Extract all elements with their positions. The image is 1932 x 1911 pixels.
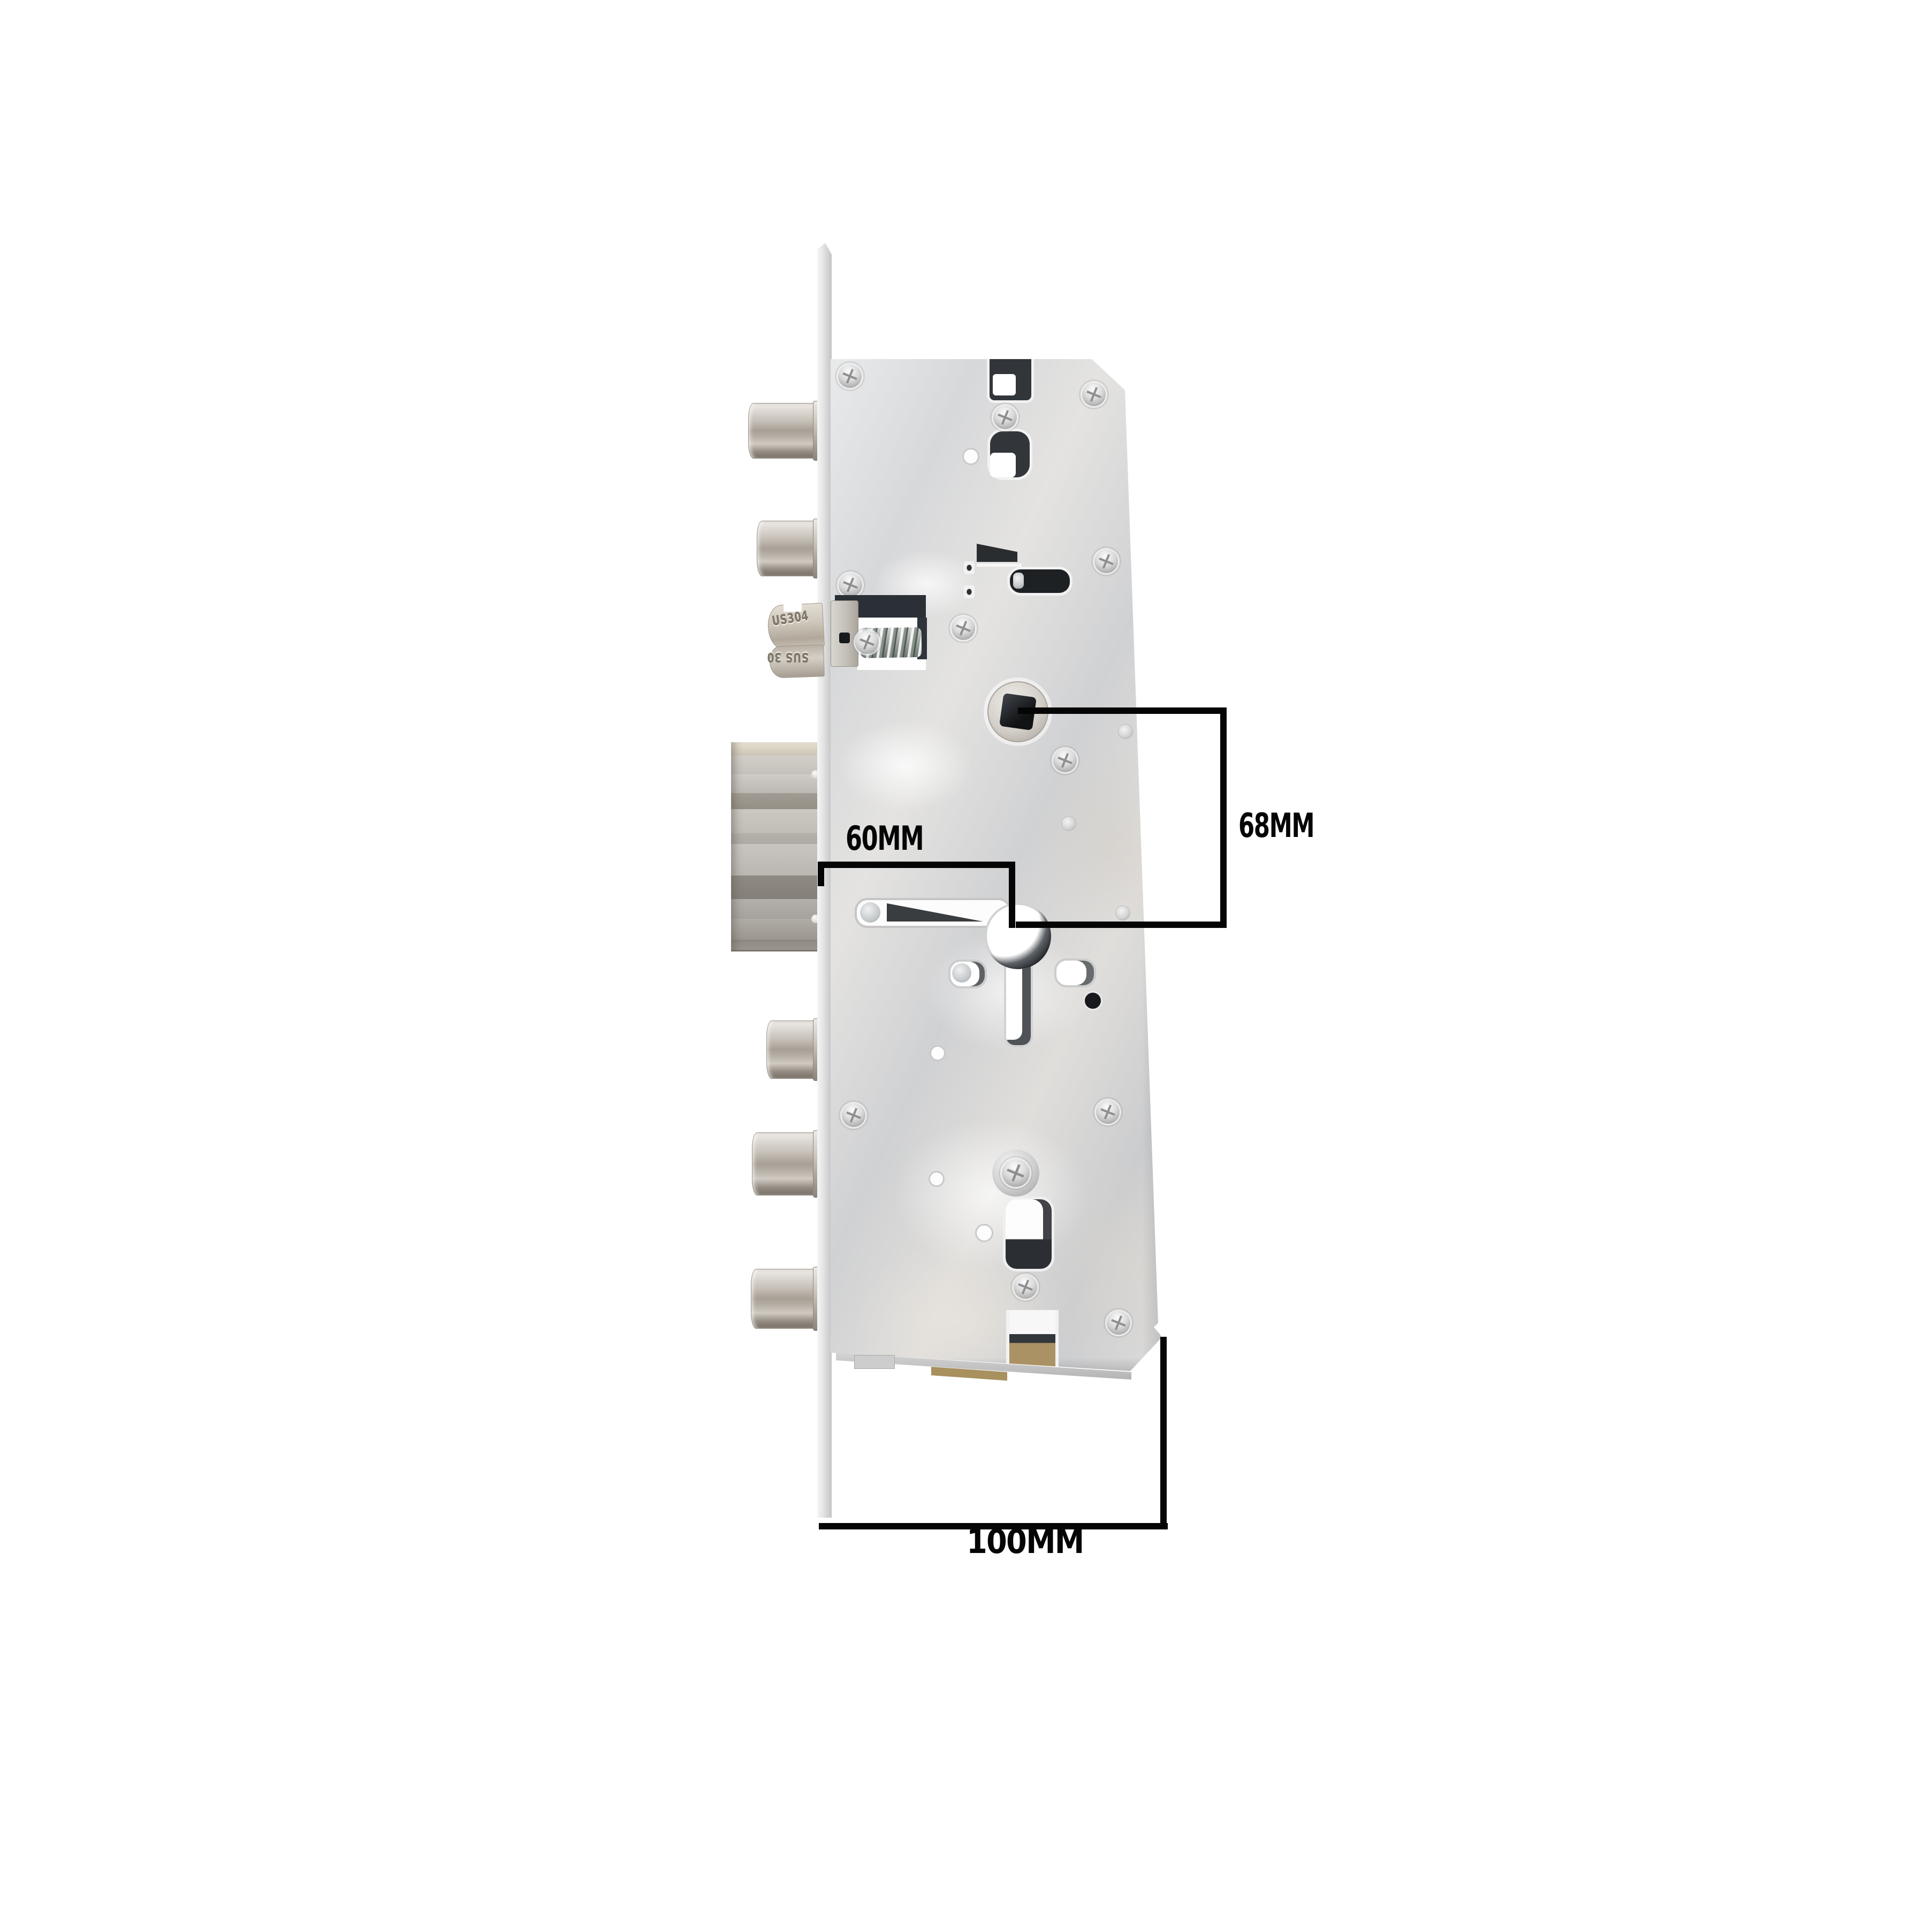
latch-engraving-top: US304 (771, 610, 810, 628)
dim-60-tick-left (818, 862, 824, 886)
dim-100-line-vertical (1160, 1337, 1167, 1529)
rivet-3 (1115, 905, 1130, 920)
cylinder-hole-shade (985, 903, 1051, 969)
dim-60-line-horizontal (820, 862, 1013, 868)
dim-68-line-top (1018, 707, 1227, 714)
square-hole-2 (964, 585, 975, 598)
dim-68-line-vertical (1220, 707, 1227, 928)
dimension-label-100mm: 100MM (967, 1525, 1084, 1558)
upper-oval-window (990, 453, 1016, 477)
pin-hole-dark (1083, 991, 1102, 1010)
deadbolt-1 (748, 403, 820, 459)
rivet-1 (1118, 724, 1133, 739)
latch-engraving-bottom: SUS 30 (767, 650, 809, 663)
latch-head-bottom-lobe: SUS 30 (769, 644, 825, 679)
rivet-2 (1061, 816, 1076, 831)
lever-pin (860, 902, 880, 923)
dimension-label-60mm: 60MM (846, 822, 923, 855)
pilot-hole-mid (930, 1045, 946, 1061)
top-notch-window (993, 374, 1016, 395)
latch-head-top-lobe: US304 (767, 603, 825, 649)
aluminum-lock-block (731, 742, 820, 951)
square-hole-1 (964, 561, 975, 574)
deadbolt-4 (752, 1132, 822, 1196)
deadbolt-5 (751, 1269, 822, 1329)
side-oval-left (948, 960, 987, 988)
pilot-hole-bottom (975, 1224, 993, 1242)
product-photo-mortise-lock: US304 SUS 30 (21, 9, 1932, 1902)
dim-60-line-vertical (1009, 862, 1015, 928)
dimension-label-68mm: 68MM (1238, 809, 1314, 842)
bracket-pin-hole (839, 633, 850, 643)
cylinder-hole-circle (985, 903, 1051, 969)
center-bezel-screw (998, 1155, 1034, 1191)
top-mount-notch (987, 359, 1034, 403)
pilot-hole-lower (929, 1171, 945, 1187)
pilot-hole-upper (962, 448, 979, 465)
bottom-lip-tab (854, 1355, 895, 1369)
link-slot-pin (1013, 573, 1024, 589)
dim-68-line-bottom (1016, 922, 1227, 928)
center-bezel (992, 1149, 1039, 1197)
bottom-notch (1006, 1310, 1059, 1370)
lever-arm (887, 903, 983, 922)
side-oval-pin (952, 963, 971, 983)
side-oval-right (1054, 958, 1096, 987)
wedge-underline (977, 564, 1022, 567)
link-slot (1010, 569, 1070, 593)
oblong-hole (1003, 1197, 1054, 1272)
upper-oval-hole (990, 431, 1030, 477)
